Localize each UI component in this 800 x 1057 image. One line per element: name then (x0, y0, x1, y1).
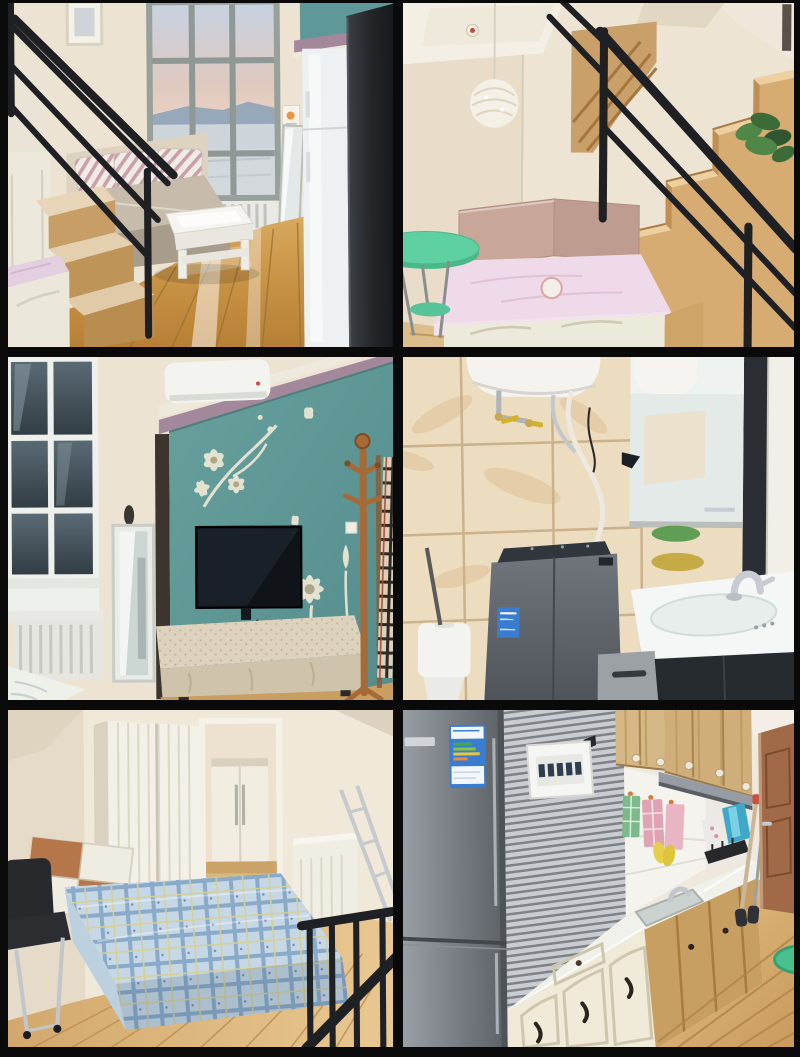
photo-tv-feature-wall (8, 357, 393, 700)
loft-window-slit (782, 4, 791, 51)
photo-kitchen (403, 710, 794, 1047)
bathroom-scene (403, 357, 794, 700)
tv-bench (156, 615, 393, 700)
photo-bathroom-laundry (403, 357, 794, 700)
entry-door (760, 723, 794, 915)
staircase-scene (403, 3, 794, 347)
wall-socket (346, 522, 357, 533)
photo-loft-living-room (8, 3, 393, 347)
water-heater-2 (634, 357, 697, 394)
boots (734, 908, 747, 927)
air-conditioner (164, 359, 271, 404)
fridge (403, 710, 508, 1047)
closet-doorway (199, 718, 283, 891)
window-wall (8, 357, 103, 621)
dark-wardrobe-slab (346, 3, 393, 347)
energy-label (497, 607, 520, 638)
window-bed (8, 255, 70, 347)
photo-collage (0, 0, 800, 1057)
loft-living-room-scene (8, 3, 393, 347)
water-heater (466, 357, 600, 397)
photo-staircase-bed-nook (403, 3, 794, 347)
door-handle (762, 822, 772, 826)
kitchen-scene (403, 710, 794, 1047)
tall-cabinet (742, 357, 768, 579)
bedroom-scene (8, 710, 393, 1047)
smoke-detector (470, 28, 475, 33)
standing-mirror (113, 505, 154, 681)
brand-plate (404, 737, 435, 746)
radiator (14, 621, 103, 680)
energy-label (449, 725, 486, 789)
tv-wall-scene (8, 357, 393, 700)
breaker-panel (527, 735, 600, 798)
photo-bedroom (8, 710, 393, 1047)
